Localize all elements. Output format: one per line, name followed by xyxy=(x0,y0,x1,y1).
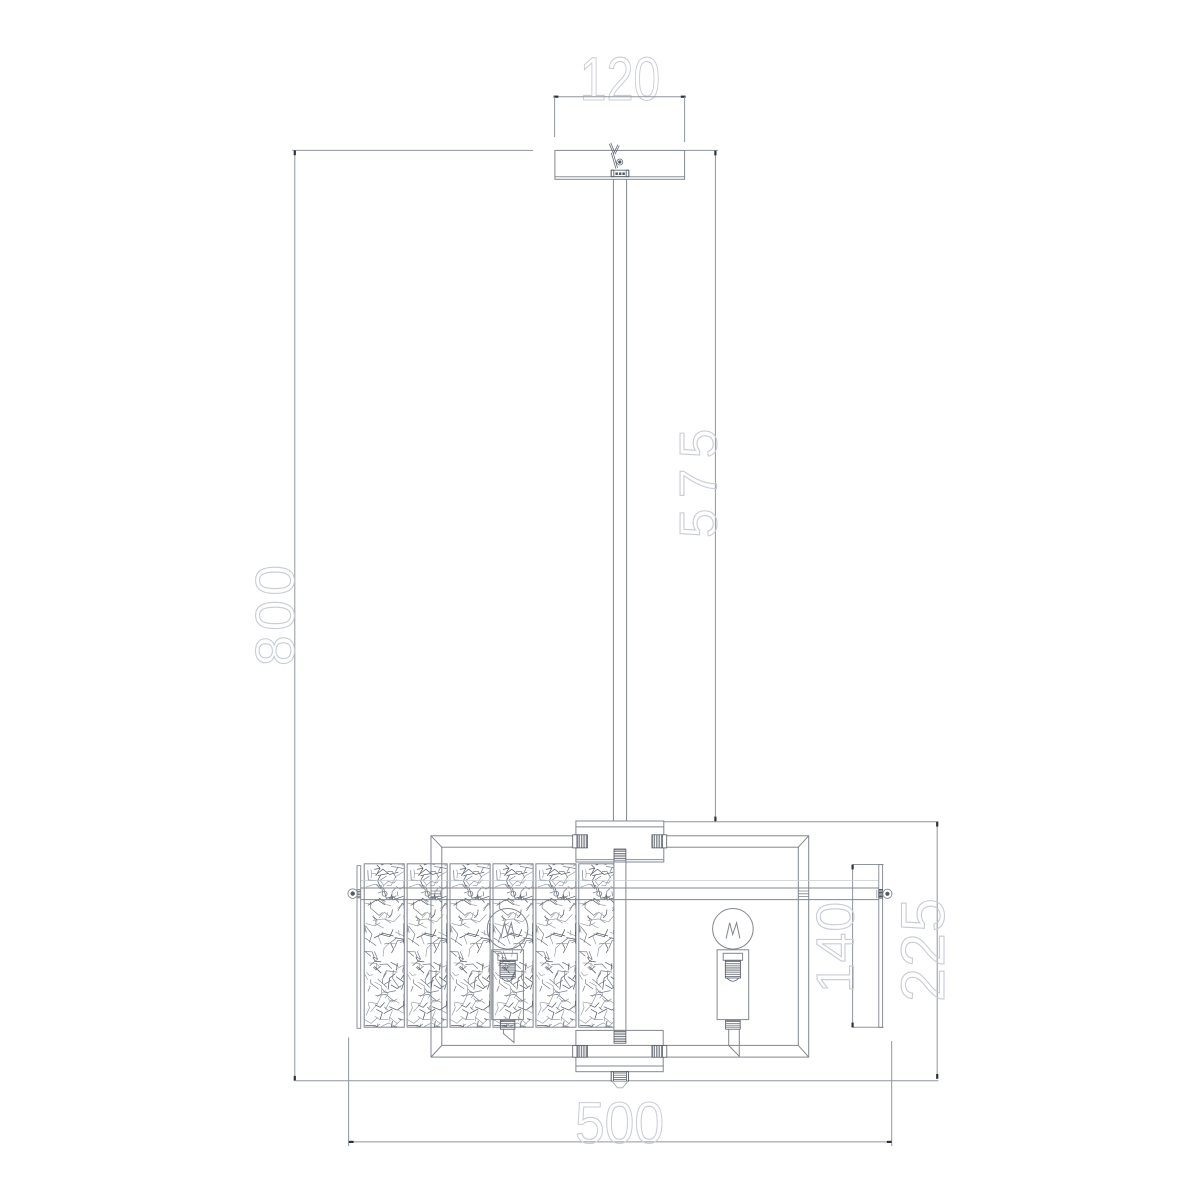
svg-text:140: 140 xyxy=(807,901,866,993)
svg-text:225: 225 xyxy=(889,897,957,1002)
svg-text:575: 575 xyxy=(670,418,729,538)
svg-text:120: 120 xyxy=(580,45,660,114)
svg-text:800: 800 xyxy=(244,560,306,666)
svg-text:500: 500 xyxy=(575,1091,664,1156)
